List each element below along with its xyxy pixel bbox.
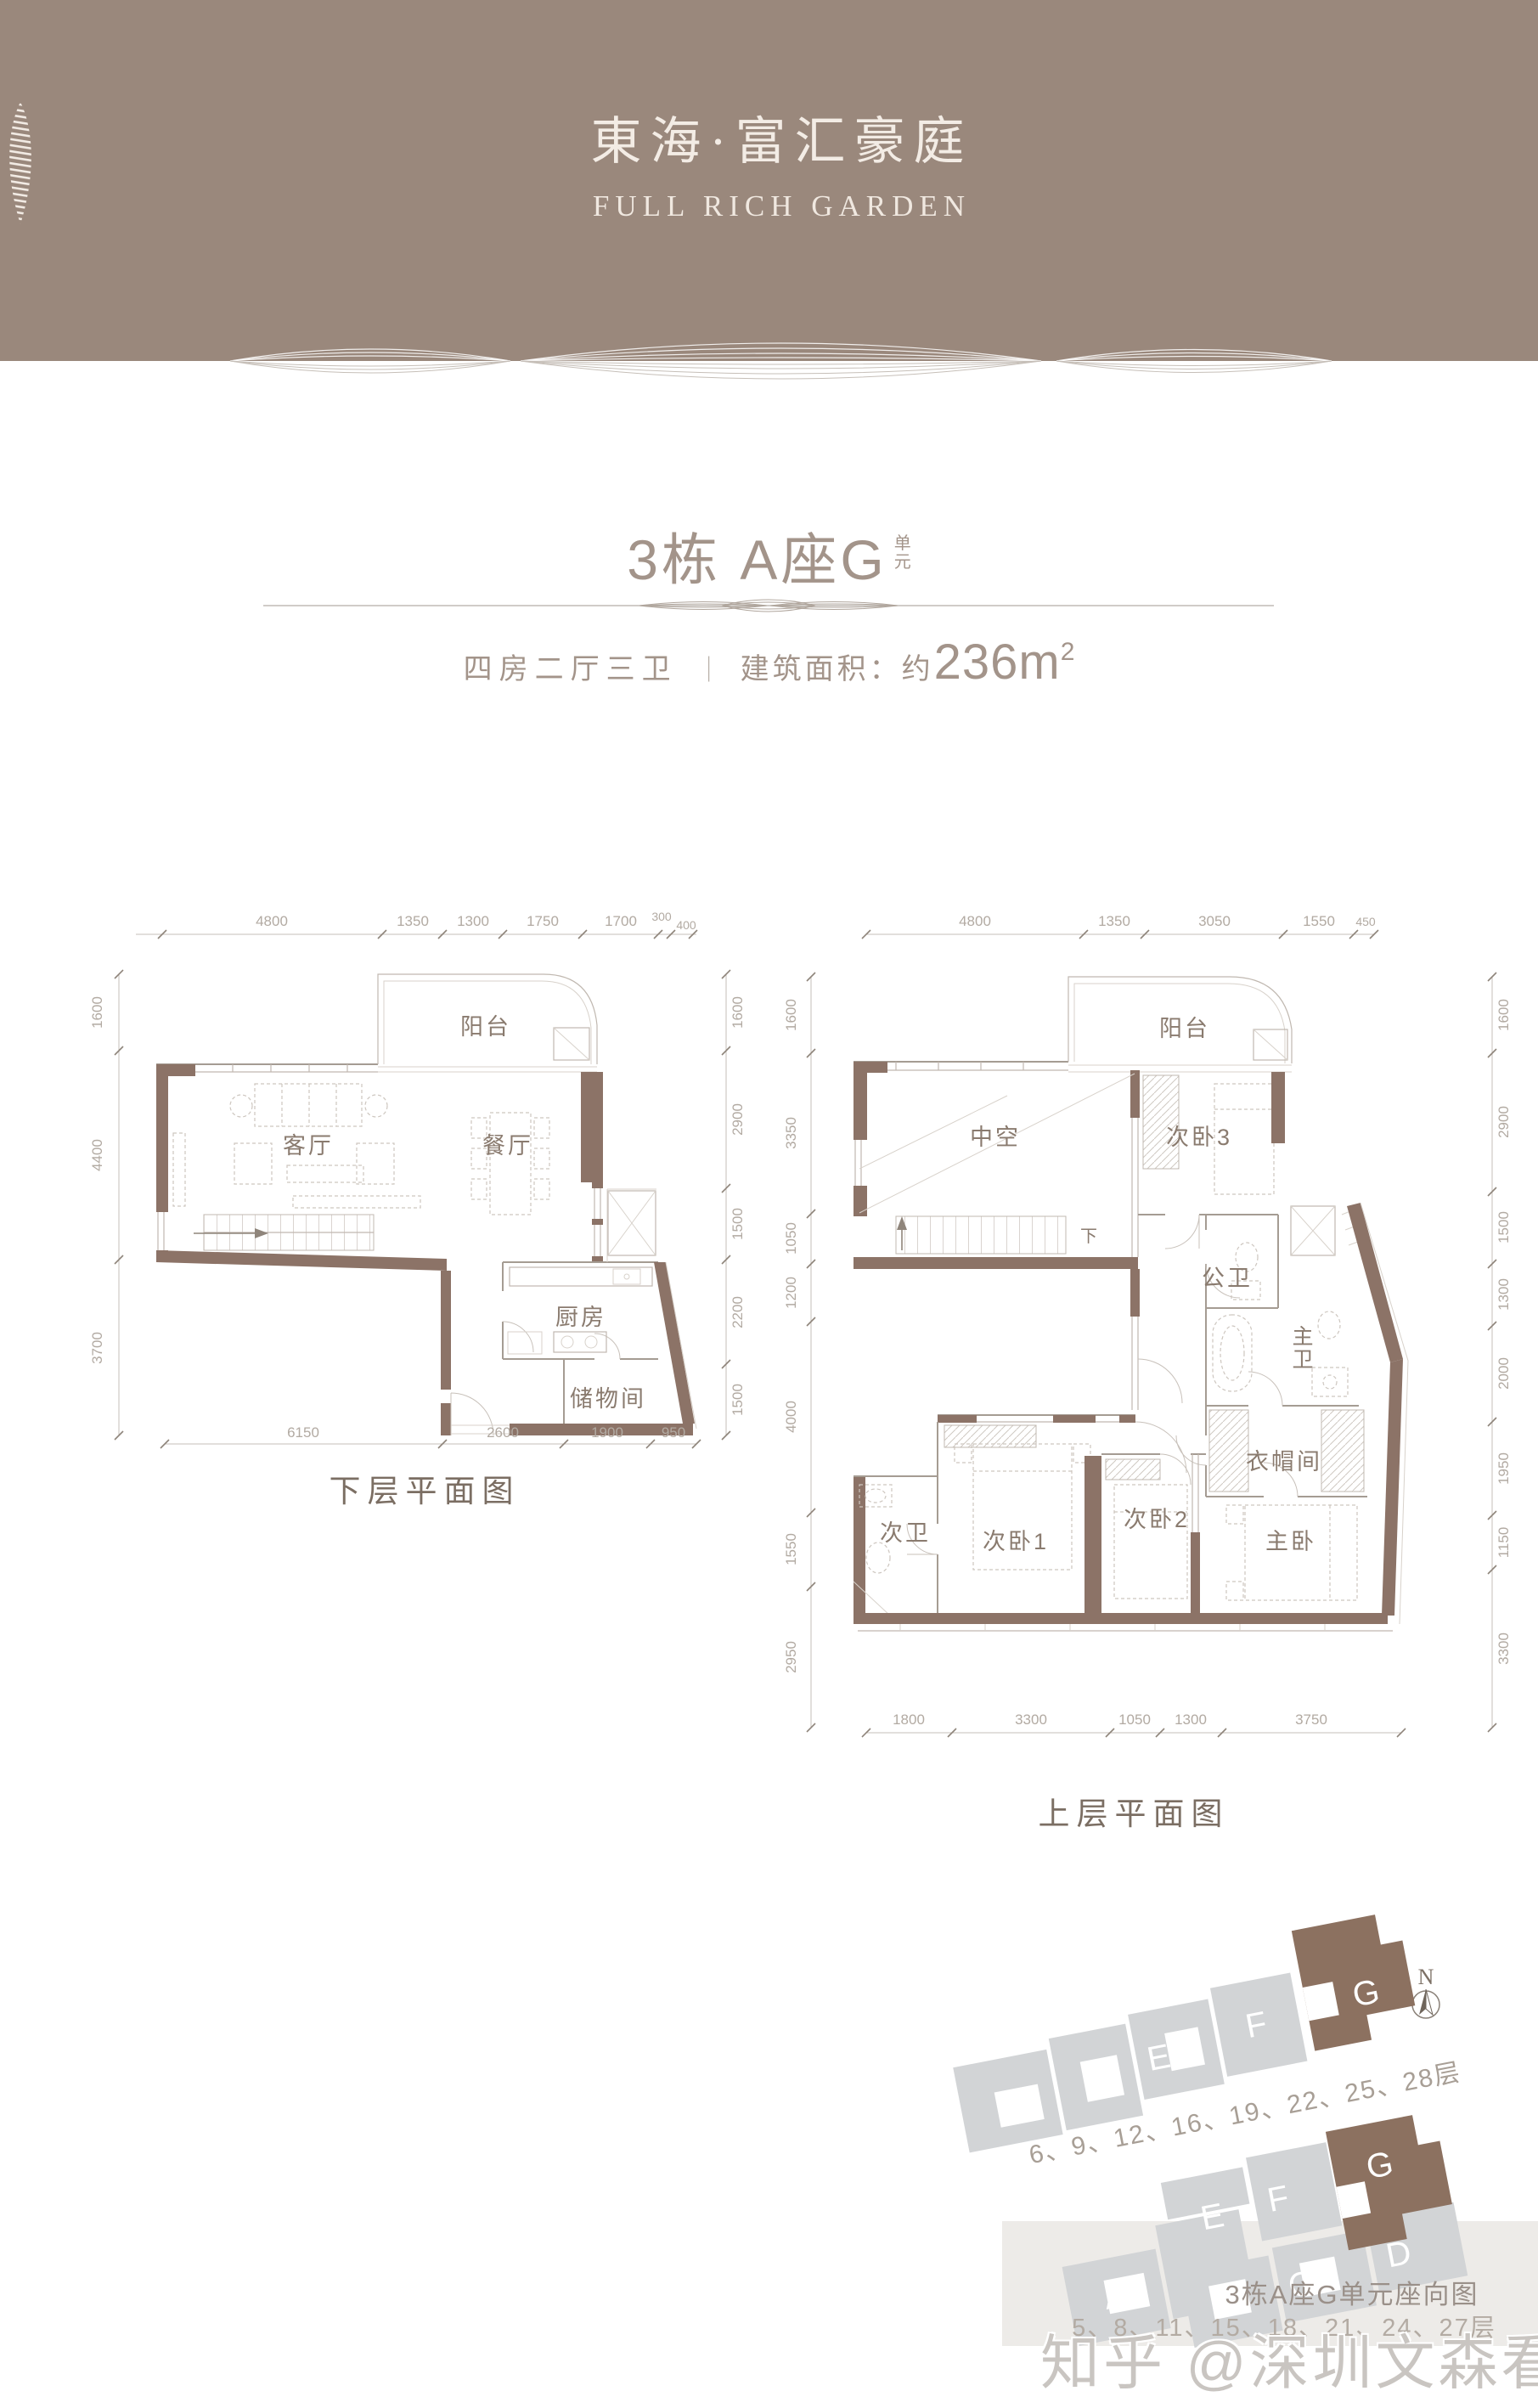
dim-label: 2900: [730, 1103, 746, 1136]
dim-label: 3300: [1496, 1633, 1512, 1665]
dim-label: 1350: [397, 913, 429, 929]
sheet-art: 4800 1350 1300 1750 1700 300 400 1600 44…: [0, 0, 1538, 2408]
dim-label: 1200: [783, 1277, 799, 1309]
dim-label: 1350: [1098, 913, 1130, 929]
dim-label: 3350: [783, 1117, 799, 1149]
dim-label: 2000: [1496, 1357, 1512, 1390]
site-caption: 3栋A座G单元座向图: [1225, 2280, 1479, 2309]
zhihu-watermark: 知乎 @深圳文森看房: [1040, 2315, 1538, 2401]
dim-label: 6150: [287, 1424, 319, 1441]
dim-label: 1800: [893, 1712, 925, 1728]
dim-label: 3300: [1015, 1712, 1047, 1728]
room-label-living: 客厅: [283, 1133, 334, 1159]
dim-label: 1150: [1496, 1527, 1512, 1559]
room-label-kitchen: 厨房: [555, 1305, 606, 1330]
room-label-bath-master: 主卫: [1289, 1325, 1313, 1371]
lower-plan-caption: 下层平面图: [330, 1474, 521, 1509]
dim-label: 1750: [527, 913, 559, 929]
room-label-bath2: 次卫: [880, 1520, 931, 1546]
dim-label: 2600: [487, 1424, 519, 1441]
dim-label: 4800: [256, 913, 288, 929]
room-label-balcony: 阳台: [460, 1014, 511, 1040]
dim-label: 1050: [1118, 1712, 1151, 1728]
dim-label: 1600: [1496, 999, 1512, 1031]
stair-direction-label: 下: [1080, 1227, 1097, 1246]
floorplan-sheet: 東海·富汇豪庭 FULL RICH GARDEN 3栋 A座G 单 元 四房二厅…: [0, 0, 1538, 2408]
room-label-balcony-upper: 阳台: [1159, 1016, 1210, 1041]
upper-floor-plan: 4800 1350 3050 1550 450 1600 3350 1050 1…: [783, 913, 1512, 1831]
dim-label: 1700: [605, 913, 637, 929]
dim-label: 1600: [783, 999, 799, 1031]
lower-floor-plan: 4800 1350 1300 1750 1700 300 400 1600 44…: [89, 910, 746, 1509]
room-label-master: 主卧: [1265, 1529, 1316, 1554]
room-label-storage: 储物间: [570, 1386, 646, 1412]
dim-label: 1900: [591, 1424, 623, 1441]
room-label-bath-public: 公卫: [1202, 1266, 1253, 1291]
dim-label: 1050: [783, 1222, 799, 1255]
dim-label: 1550: [783, 1533, 799, 1565]
dim-label: 1300: [457, 913, 489, 929]
header-wave-ornament: [230, 343, 1332, 379]
dim-label: 3050: [1198, 913, 1231, 929]
dim-label: 3700: [89, 1332, 105, 1364]
upper-plan-caption: 上层平面图: [1039, 1796, 1230, 1831]
dim-label: 300: [651, 910, 672, 923]
dim-label: 400: [676, 918, 696, 932]
dim-label: 1500: [1496, 1211, 1512, 1243]
dim-label: 950: [662, 1424, 685, 1441]
dim-label: 1950: [1496, 1452, 1512, 1485]
dim-label: 1600: [730, 996, 746, 1029]
dim-label: 2950: [783, 1641, 799, 1673]
room-label-closet: 衣帽间: [1246, 1449, 1322, 1475]
dim-label: 4400: [89, 1139, 105, 1171]
dim-label: 1550: [1303, 913, 1335, 929]
room-label-dining: 餐厅: [482, 1133, 533, 1159]
dim-label: 1600: [89, 996, 105, 1029]
title-divider: [263, 600, 1274, 612]
room-label-bed1: 次卧1: [983, 1529, 1049, 1554]
north-label: N: [1418, 1965, 1434, 1989]
dim-label: 1300: [1175, 1712, 1207, 1728]
room-label-void: 中空: [970, 1125, 1021, 1150]
dim-label: 1300: [1496, 1278, 1512, 1311]
dim-label: 450: [1355, 915, 1376, 928]
dim-label: 2900: [1496, 1106, 1512, 1138]
dim-label: 2200: [730, 1296, 746, 1328]
dim-label: 1500: [730, 1208, 746, 1240]
dim-label: 4000: [783, 1401, 799, 1433]
room-label-bed2: 次卧2: [1124, 1507, 1190, 1532]
dim-label: 4800: [959, 913, 991, 929]
room-label-bed3: 次卧3: [1166, 1125, 1232, 1150]
dim-label: 3750: [1295, 1712, 1327, 1728]
dim-label: 1500: [730, 1384, 746, 1416]
